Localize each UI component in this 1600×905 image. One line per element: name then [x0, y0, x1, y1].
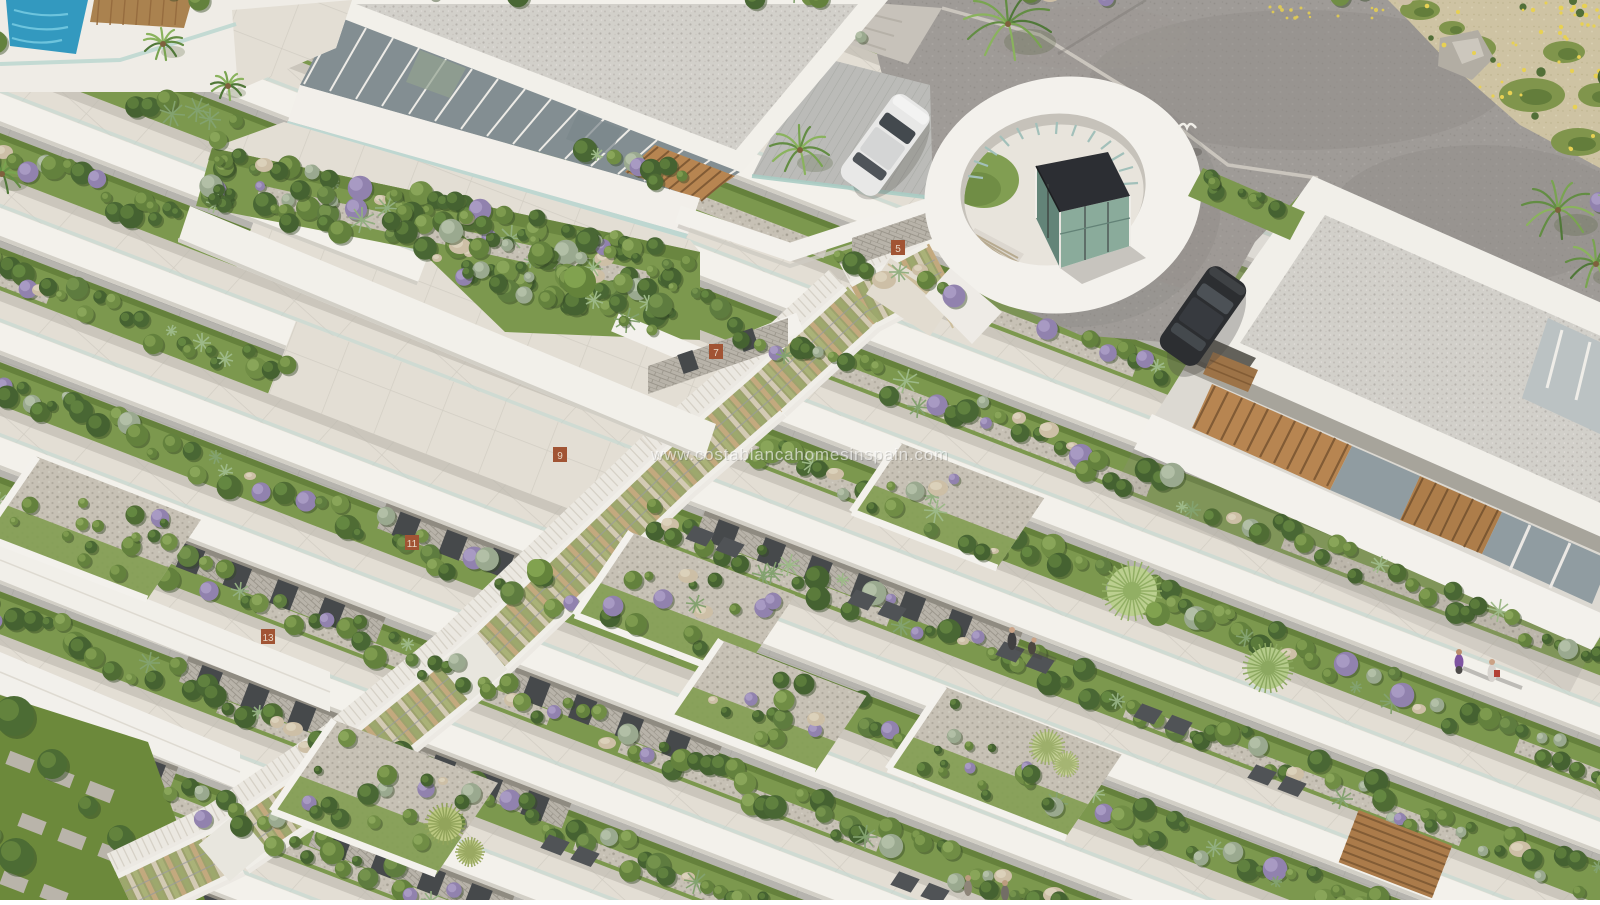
- svg-text:www.costablancahomesinspain.co: www.costablancahomesinspain.com: [650, 445, 949, 464]
